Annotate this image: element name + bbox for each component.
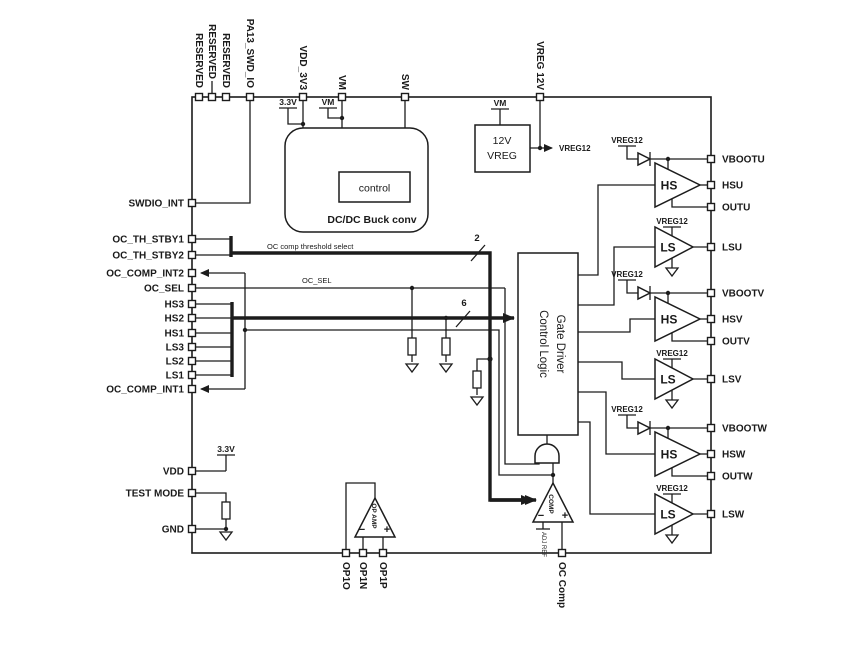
pin-label-vreg-12v: VREG 12V bbox=[534, 41, 545, 90]
pin-label-vbootw: VBOOTW bbox=[722, 424, 768, 435]
vreg-output-label: VREG12 bbox=[559, 144, 591, 153]
pin-label-reserved: RESERVED bbox=[220, 33, 231, 88]
pin-label-op1n: OP1N bbox=[357, 562, 368, 589]
gate-bus-width: 6 bbox=[461, 298, 466, 309]
pin-label-ls2: LS2 bbox=[166, 357, 185, 368]
pin-label-sw: SW bbox=[399, 74, 410, 91]
pin-label-test-mode: TEST MODE bbox=[126, 489, 185, 500]
hs-driver-label: HS bbox=[661, 448, 678, 462]
pin-label-vdd: VDD bbox=[163, 467, 184, 478]
supply-3v3-label: 3.3V bbox=[217, 444, 235, 454]
vreg-block bbox=[475, 125, 530, 172]
ground-icon bbox=[220, 532, 232, 540]
vreg12-supply-label: VREG12 bbox=[611, 270, 643, 279]
pin-label-hsv: HSV bbox=[722, 315, 743, 326]
pin-label-outw: OUTW bbox=[722, 472, 753, 483]
ground-icon bbox=[666, 535, 678, 543]
gate-drivers: VREG12 HS VREG12 LS VREG12 HS VREG12 LS … bbox=[611, 136, 700, 534]
comparator-minus-sign: − bbox=[538, 510, 544, 522]
buck-converter-label: DC/DC Buck conv bbox=[327, 214, 416, 226]
and-gate bbox=[535, 444, 559, 463]
pin-label-hsw: HSW bbox=[722, 450, 746, 461]
pin-label-outv: OUTV bbox=[722, 337, 750, 348]
ground-icon bbox=[406, 364, 418, 372]
supply-vm-label: VM bbox=[322, 97, 335, 107]
vreg12-supply-label: VREG12 bbox=[656, 349, 688, 358]
chip-outline bbox=[192, 97, 711, 553]
bus-threshold-select bbox=[231, 253, 536, 500]
ground-icon bbox=[440, 364, 452, 372]
control-logic-label-line1: Control Logic bbox=[537, 310, 549, 378]
pin-label-op1o: OP1O bbox=[340, 562, 351, 590]
pin-label-lsv: LSV bbox=[722, 375, 742, 386]
left-pin-labels: SWDIO_INT OC_TH_STBY1 OC_TH_STBY2 OC_COM… bbox=[106, 199, 184, 536]
ocsel-pulldown-resistor bbox=[408, 338, 416, 355]
vreg12-supply-label: VREG12 bbox=[611, 136, 643, 145]
gatebus-pulldown-resistor bbox=[442, 338, 450, 355]
comparator-label: COMP bbox=[547, 494, 554, 514]
pin-label-lsw: LSW bbox=[722, 510, 745, 521]
bootstrap-diode-icon bbox=[638, 287, 650, 299]
threshold-bus-width: 2 bbox=[474, 233, 479, 244]
control-logic-label-line2: Gate Driver bbox=[554, 315, 566, 374]
vreg12-supply-label: VREG12 bbox=[656, 484, 688, 493]
testmode-pulldown-resistor bbox=[222, 502, 230, 519]
pin-label-oc-th-stby2: OC_TH_STBY2 bbox=[112, 251, 184, 262]
op-amp-plus-sign: + bbox=[384, 524, 390, 536]
pin-label-lsu: LSU bbox=[722, 243, 742, 254]
block-diagram: DC/DC Buck conv control 12V VREG VREG12 … bbox=[0, 0, 868, 649]
ls-driver-label: LS bbox=[660, 508, 675, 522]
ground-icon bbox=[471, 397, 483, 405]
pin-label-vdd-3v3: VDD_3V3 bbox=[297, 46, 308, 91]
bus-wires bbox=[231, 236, 536, 500]
pin-label-oc-sel: OC_SEL bbox=[144, 284, 184, 295]
pin-label-ls1: LS1 bbox=[166, 371, 185, 382]
oc-sel-wire-label: OC_SEL bbox=[302, 276, 332, 285]
supply-3v3-label: 3.3V bbox=[279, 97, 297, 107]
supply-vm-label: VM bbox=[494, 98, 507, 108]
pin-label-oc-th-stby1: OC_TH_STBY1 bbox=[112, 235, 184, 246]
vreg12-supply-label: VREG12 bbox=[656, 217, 688, 226]
pin-label-vbootu: VBOOTU bbox=[722, 155, 765, 166]
ground-icon bbox=[666, 400, 678, 408]
diagram-canvas: DC/DC Buck conv control 12V VREG VREG12 … bbox=[0, 0, 868, 649]
pin-label-hsu: HSU bbox=[722, 181, 743, 192]
pin-label-oc-comp-int2: OC_COMP_INT2 bbox=[106, 269, 184, 280]
pin-label-ls3: LS3 bbox=[166, 343, 185, 354]
pin-label-op1p: OP1P bbox=[377, 562, 388, 589]
vreg-label-line1: 12V bbox=[493, 135, 512, 147]
pin-squares bbox=[189, 94, 715, 557]
right-pin-labels: VBOOTU HSU OUTU LSU VBOOTV HSV OUTV LSV … bbox=[722, 155, 768, 521]
hs-driver-label: HS bbox=[661, 179, 678, 193]
bootstrap-diode-icon bbox=[638, 153, 650, 165]
wires bbox=[196, 81, 711, 549]
pin-label-hs3: HS3 bbox=[165, 300, 185, 311]
pin-label-reserved: RESERVED bbox=[206, 24, 217, 79]
ls-driver-label: LS bbox=[660, 241, 675, 255]
bottom-pin-labels: OP1O OP1N OP1P OC Comp bbox=[340, 562, 567, 608]
pin-label-vm: VM bbox=[336, 75, 347, 90]
op-amp-label: OP AMP bbox=[370, 503, 377, 529]
pin-label-reserved: RESERVED bbox=[193, 33, 204, 88]
ls-driver-label: LS bbox=[660, 373, 675, 387]
comparator-plus-sign: + bbox=[562, 510, 568, 522]
top-pin-labels: RESERVED RESERVED RESERVED PA13_SWD_IO V… bbox=[193, 19, 545, 91]
vreg12-supply-label: VREG12 bbox=[611, 405, 643, 414]
pin-label-oc-comp: OC Comp bbox=[556, 562, 567, 608]
thbus-pulldown-resistor bbox=[473, 371, 481, 388]
pin-label-swdio-int: SWDIO_INT bbox=[128, 199, 184, 210]
threshold-bus-label: OC comp threshold select bbox=[267, 242, 354, 251]
pin-label-pa13-swd-io: PA13_SWD_IO bbox=[244, 19, 255, 89]
pin-label-vbootv: VBOOTV bbox=[722, 289, 765, 300]
vreg-label-line2: VREG bbox=[487, 150, 517, 162]
pin-label-oc-comp-int1: OC_COMP_INT1 bbox=[106, 385, 184, 396]
bootstrap-diode-icon bbox=[638, 422, 650, 434]
pin-label-gnd: GND bbox=[162, 525, 184, 536]
adj-ref-label: ADJ REF bbox=[540, 532, 546, 557]
pin-label-hs2: HS2 bbox=[165, 314, 185, 325]
pin-label-outu: OUTU bbox=[722, 203, 750, 214]
hs-driver-label: HS bbox=[661, 313, 678, 327]
pin-label-hs1: HS1 bbox=[165, 329, 185, 340]
op-amp-minus-sign: − bbox=[359, 524, 365, 536]
buck-control-label: control bbox=[359, 183, 391, 195]
ground-icon bbox=[666, 268, 678, 276]
